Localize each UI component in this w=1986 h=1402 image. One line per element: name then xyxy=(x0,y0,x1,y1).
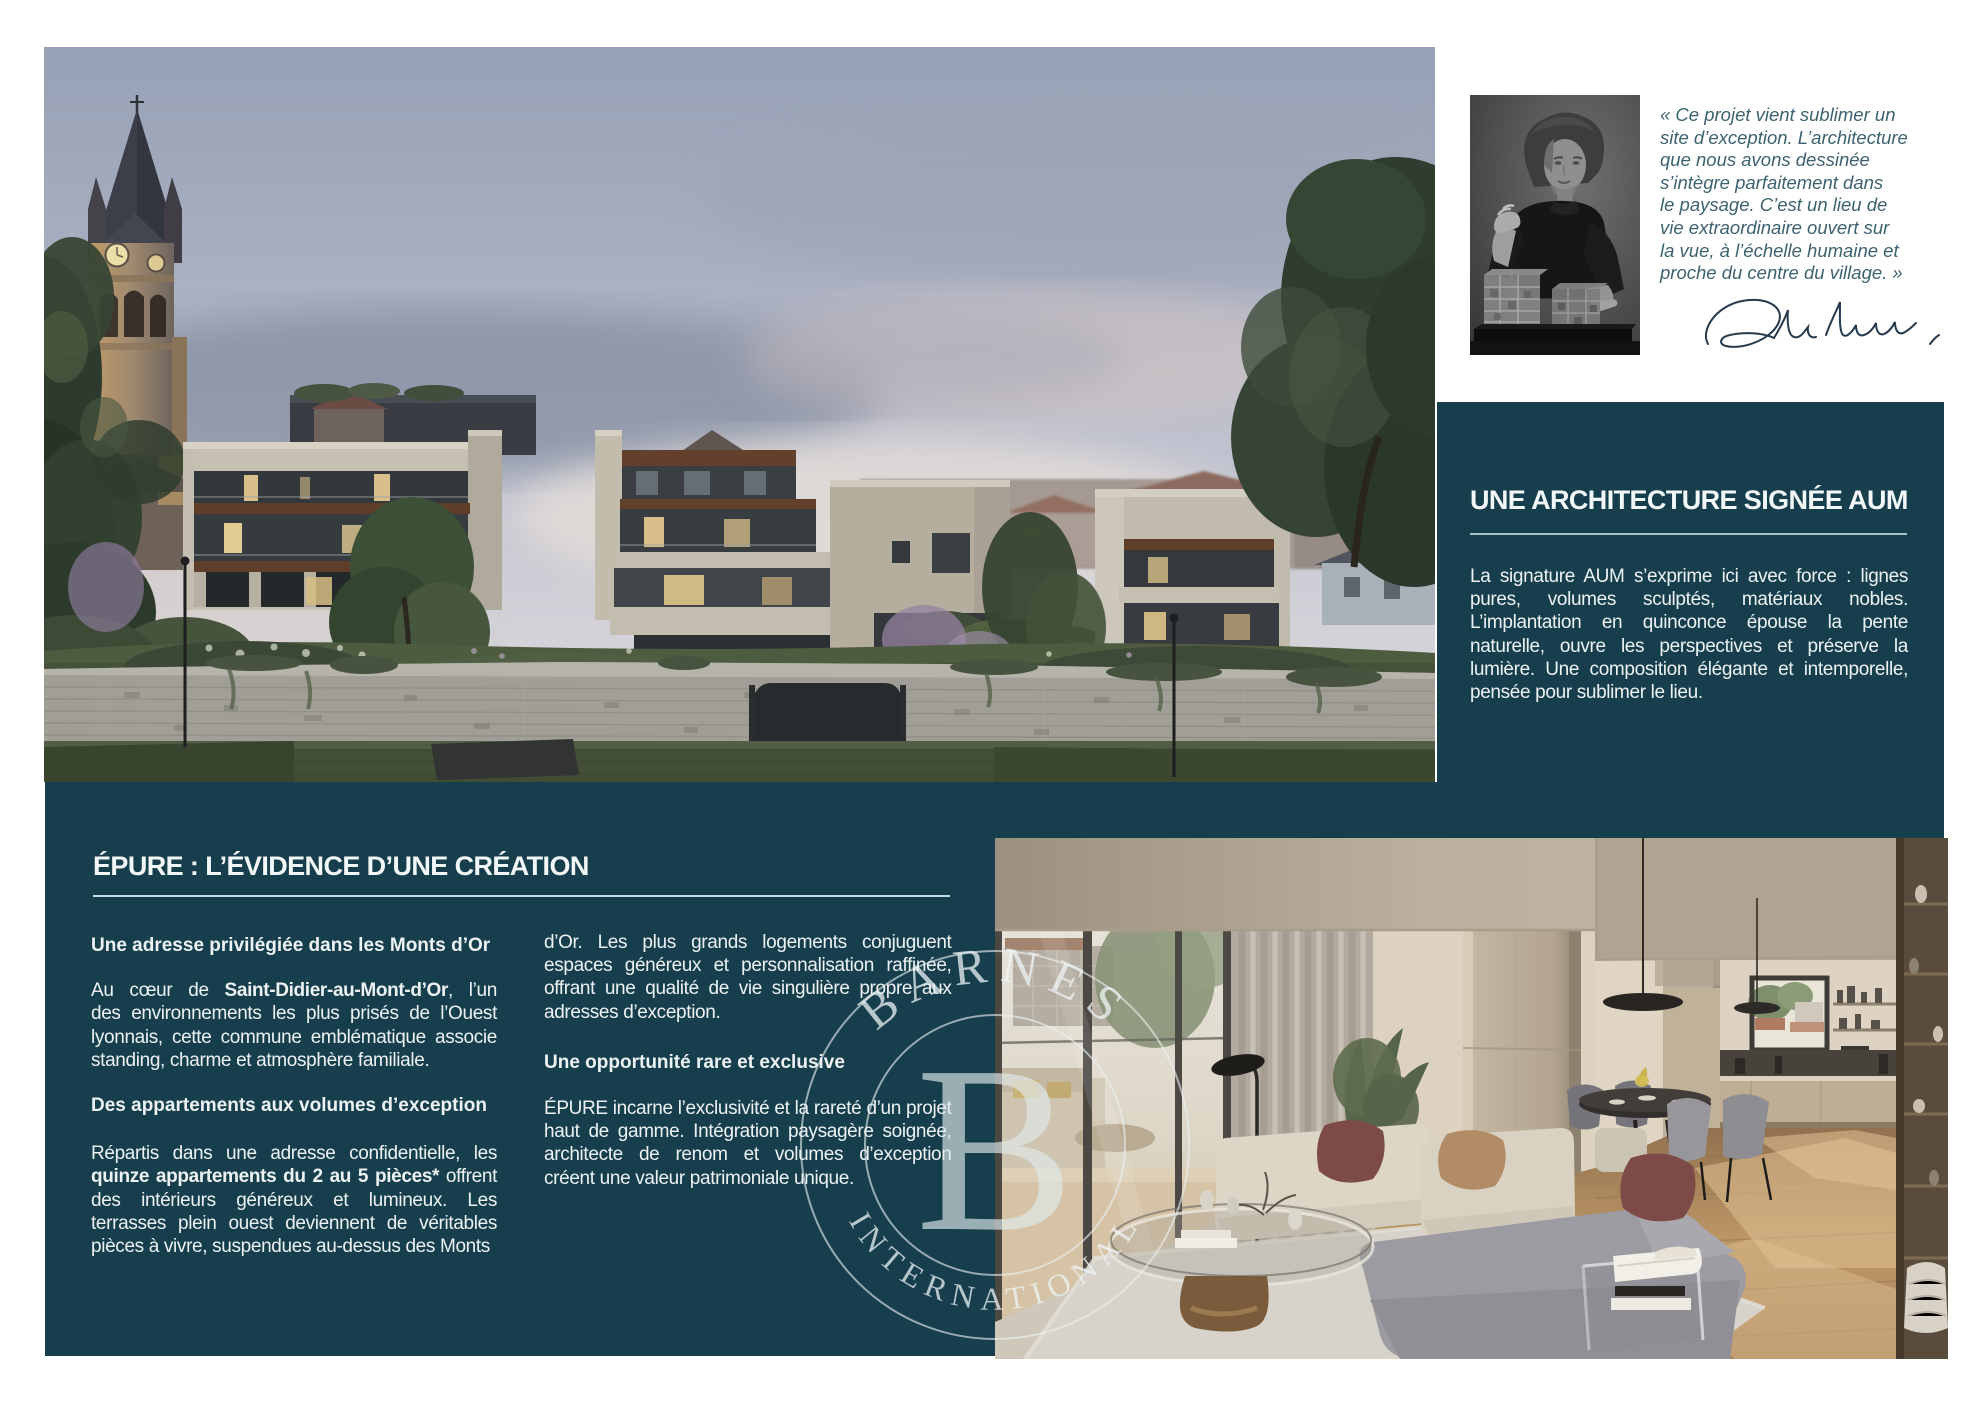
svg-text:B: B xyxy=(916,1018,1075,1281)
